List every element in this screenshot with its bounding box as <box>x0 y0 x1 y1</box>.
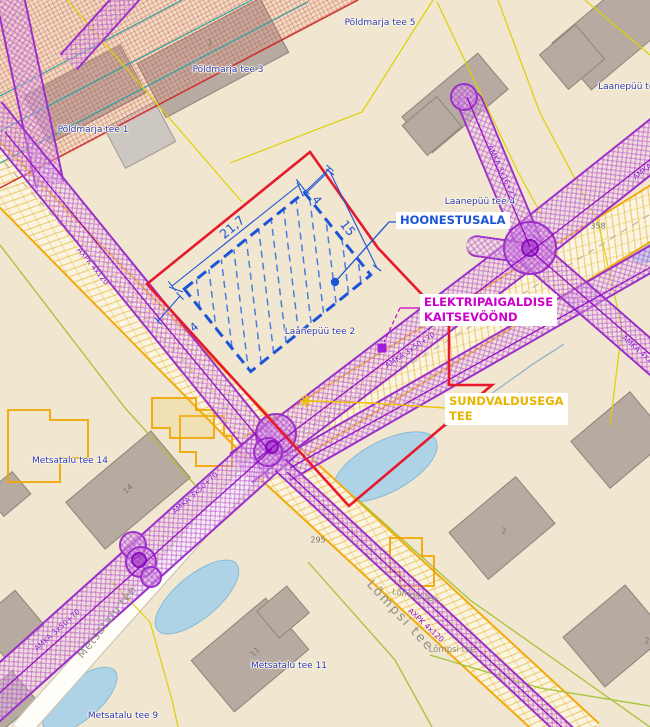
hoonestusala-label: HOONESTUSALA <box>396 212 510 229</box>
street-label: Metsatalu tee 9 <box>88 711 158 721</box>
street-label: Põldmarja tee 1 <box>58 125 129 135</box>
street-label: Põldmarja tee 5 <box>345 18 416 28</box>
parcel-label: 358 <box>590 222 605 231</box>
street-label: Põldmarja tee 3 <box>193 65 264 75</box>
building <box>0 471 31 517</box>
street-label: Laanepüü tee <box>598 82 650 92</box>
cable-junction <box>131 552 147 568</box>
kaitsevoond-label: ELEKTRIPAIGALDISE KAITSEVÖÖND <box>420 294 557 326</box>
dimension-text: 4 <box>309 193 325 207</box>
dimension-lines <box>155 165 382 325</box>
building <box>562 584 650 687</box>
parcel-label: 1 <box>207 39 212 48</box>
parcel-label: 2 <box>644 637 649 646</box>
kaitsevoond-label-line2: KAITSEVÖÖND <box>424 310 553 325</box>
parcel-label: 295 <box>310 536 325 545</box>
sundvaldus-label-line1: SUNDVALDUSEGA <box>449 394 564 409</box>
building <box>570 391 650 489</box>
dimension-text: 21,7 <box>217 212 248 241</box>
sundvaldus-label-line2: TEE <box>449 409 564 424</box>
cable-junction <box>521 239 539 257</box>
protection-corridor <box>0 101 292 478</box>
street-label: Metsatalu tee 11 <box>251 661 327 671</box>
hoonestusala-marker <box>331 278 339 286</box>
road-name-label: Lõmpsi tee <box>429 645 476 655</box>
parcel-label: 2 <box>501 527 506 536</box>
street-label: Laanepüü tee 2 <box>285 327 355 337</box>
street-label: Metsatalu tee 14 <box>32 456 108 466</box>
cable-junction <box>450 83 478 111</box>
kaitsevoond-label-line1: ELEKTRIPAIGALDISE <box>424 295 553 310</box>
dimension-text: 15 <box>337 217 359 239</box>
map-canvas[interactable]: Põldmarja tee 5 Põldmarja tee 3 Põldmarj… <box>0 0 650 727</box>
cable-junction <box>140 566 162 588</box>
cable-junction <box>265 440 279 454</box>
street-label: Laanepüü tee 4 <box>445 197 515 207</box>
sundvaldus-label: SUNDVALDUSEGA TEE <box>445 393 568 425</box>
